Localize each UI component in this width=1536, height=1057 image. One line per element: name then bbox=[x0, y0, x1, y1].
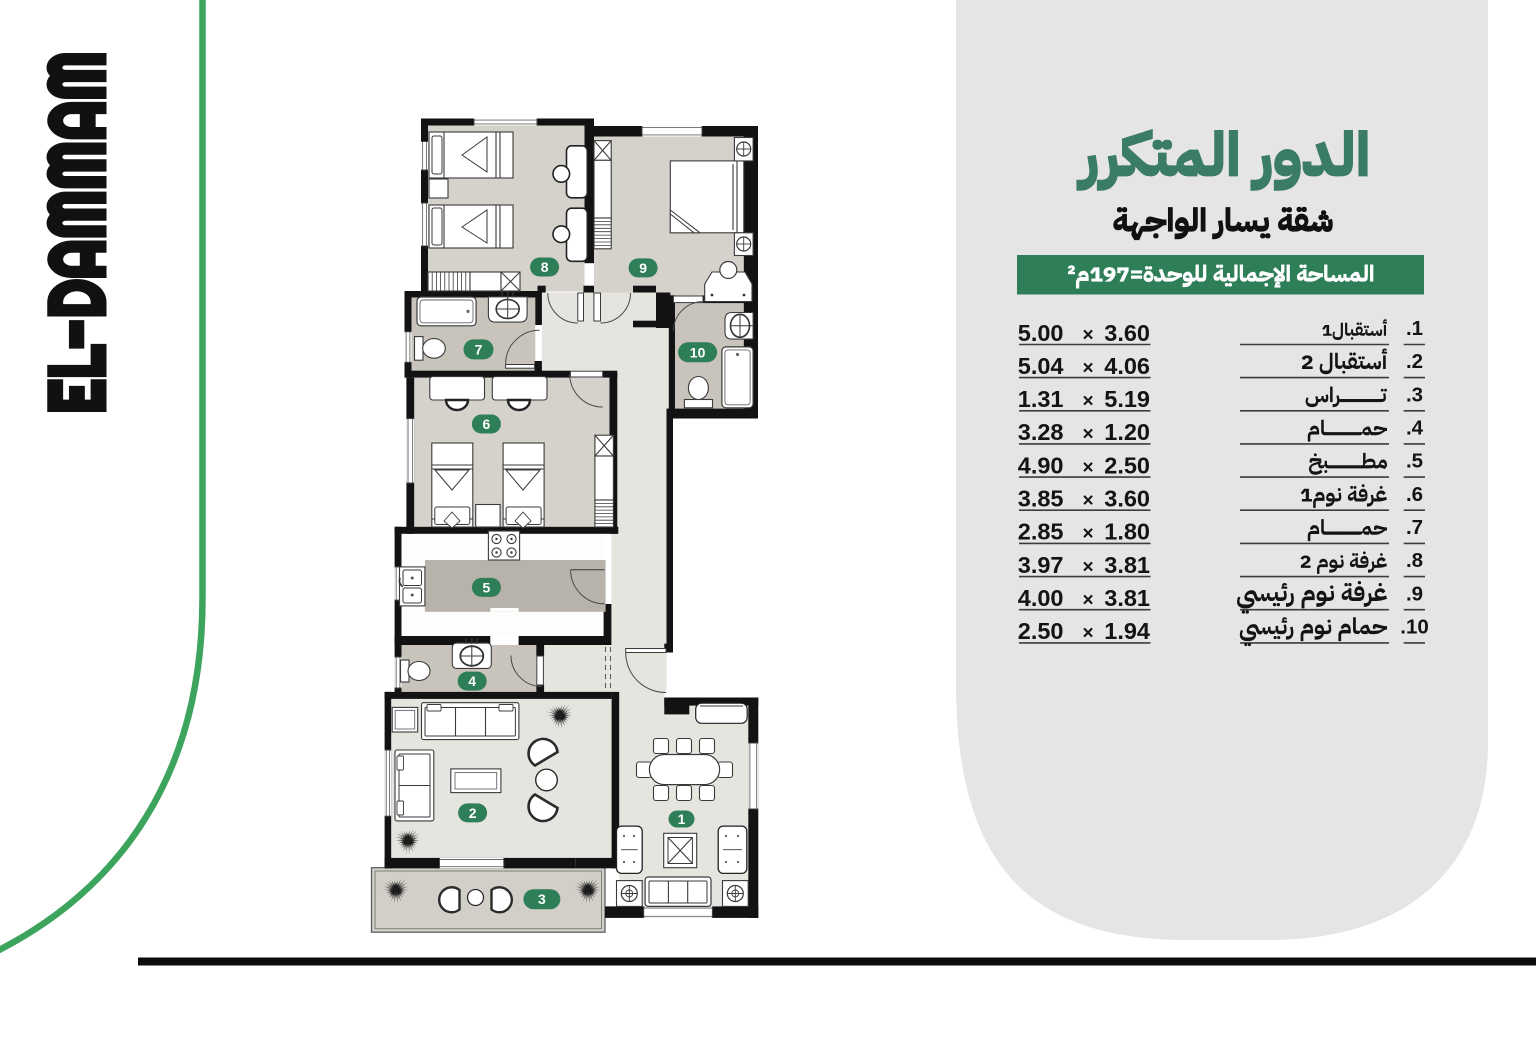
svg-text:×: × bbox=[1082, 623, 1093, 644]
svg-text:×: × bbox=[1082, 557, 1093, 578]
svg-text:3.60: 3.60 bbox=[1104, 320, 1150, 346]
svg-text:3.60: 3.60 bbox=[1104, 486, 1150, 512]
svg-text:7: 7 bbox=[475, 341, 483, 357]
svg-text:1.20: 1.20 bbox=[1104, 419, 1150, 445]
svg-text:.7: .7 bbox=[1406, 516, 1423, 539]
svg-text:×: × bbox=[1082, 590, 1093, 611]
svg-text:3.81: 3.81 bbox=[1104, 552, 1150, 578]
svg-text:1.80: 1.80 bbox=[1104, 519, 1150, 545]
svg-text:×: × bbox=[1082, 424, 1093, 445]
svg-text:9: 9 bbox=[639, 260, 647, 276]
svg-text:5.19: 5.19 bbox=[1104, 386, 1150, 412]
svg-text:2.50: 2.50 bbox=[1104, 452, 1150, 478]
svg-text:2.85: 2.85 bbox=[1018, 519, 1064, 545]
svg-text:1.94: 1.94 bbox=[1104, 618, 1150, 644]
svg-text:6: 6 bbox=[483, 416, 491, 432]
svg-text:×: × bbox=[1082, 524, 1093, 545]
svg-text:.2: .2 bbox=[1406, 350, 1423, 373]
svg-text:3: 3 bbox=[538, 891, 546, 907]
svg-text:.1: .1 bbox=[1406, 317, 1423, 340]
svg-text:×: × bbox=[1082, 358, 1093, 379]
svg-text:4.00: 4.00 bbox=[1018, 585, 1064, 611]
svg-text:1.31: 1.31 bbox=[1018, 386, 1064, 412]
svg-text:.9: .9 bbox=[1406, 582, 1423, 605]
svg-text:3.85: 3.85 bbox=[1018, 486, 1064, 512]
svg-text:.10: .10 bbox=[1400, 615, 1429, 638]
svg-text:3.81: 3.81 bbox=[1104, 585, 1150, 611]
svg-text:4.06: 4.06 bbox=[1104, 353, 1150, 379]
svg-text:.8: .8 bbox=[1406, 549, 1423, 572]
svg-text:×: × bbox=[1082, 391, 1093, 412]
svg-text:1: 1 bbox=[678, 811, 686, 827]
svg-text:2.50: 2.50 bbox=[1018, 618, 1064, 644]
svg-text:.4: .4 bbox=[1406, 417, 1424, 440]
svg-text:4: 4 bbox=[468, 673, 476, 689]
svg-text:.5: .5 bbox=[1406, 450, 1423, 473]
svg-text:8: 8 bbox=[541, 259, 549, 275]
svg-text:×: × bbox=[1082, 457, 1093, 478]
svg-text:4.90: 4.90 bbox=[1018, 452, 1064, 478]
svg-text:5.00: 5.00 bbox=[1018, 320, 1064, 346]
svg-text:5.04: 5.04 bbox=[1018, 353, 1064, 379]
svg-text:3.97: 3.97 bbox=[1018, 552, 1064, 578]
svg-text:.6: .6 bbox=[1406, 483, 1423, 506]
svg-text:5: 5 bbox=[483, 579, 491, 595]
svg-text:10: 10 bbox=[690, 344, 706, 360]
svg-text:2: 2 bbox=[469, 805, 477, 821]
svg-text:×: × bbox=[1082, 325, 1093, 346]
svg-text:.3: .3 bbox=[1406, 383, 1423, 406]
svg-text:×: × bbox=[1082, 491, 1093, 512]
svg-text:3.28: 3.28 bbox=[1018, 419, 1064, 445]
